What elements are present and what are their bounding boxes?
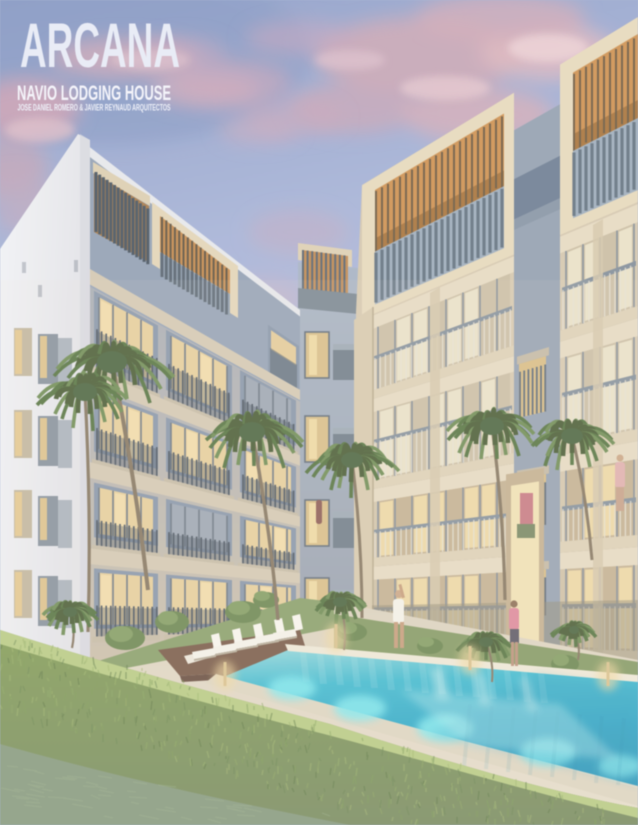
svg-text:ARCANA: ARCANA: [20, 11, 180, 81]
svg-text:JOSE DANIEL ROMERO & JAVIER: JOSE DANIEL ROMERO & JAVIER REYNAUD ARQU…: [18, 102, 171, 113]
